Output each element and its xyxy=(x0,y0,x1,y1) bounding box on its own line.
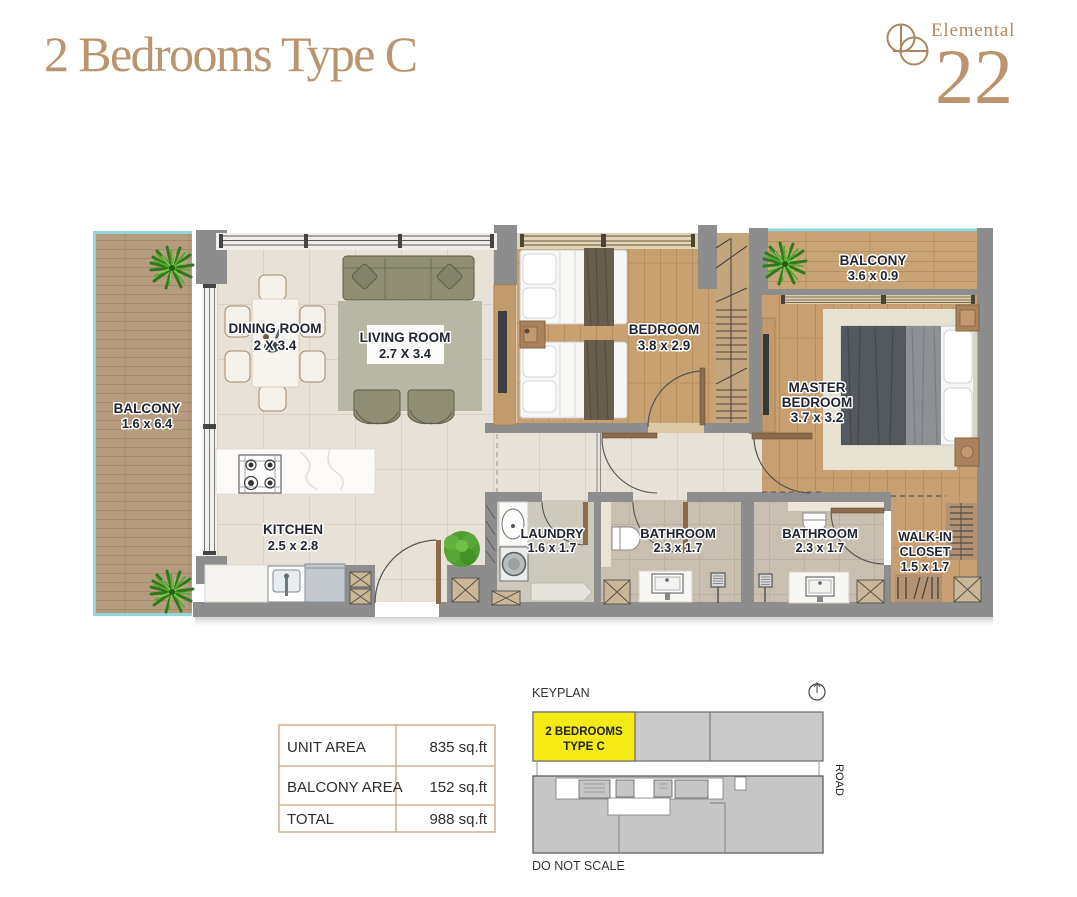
svg-text:UNIT AREA: UNIT AREA xyxy=(287,739,366,756)
svg-text:LIVING ROOM: LIVING ROOM xyxy=(360,330,451,345)
svg-text:22: 22 xyxy=(935,33,1013,120)
svg-text:2.7 X 3.4: 2.7 X 3.4 xyxy=(379,346,432,361)
svg-text:3.8 x 2.9: 3.8 x 2.9 xyxy=(638,338,691,353)
svg-text:1.6 x 6.4: 1.6 x 6.4 xyxy=(122,416,173,431)
svg-text:988 sq.ft: 988 sq.ft xyxy=(429,811,487,828)
svg-text:ROAD: ROAD xyxy=(833,764,845,796)
svg-text:BALCONY AREA: BALCONY AREA xyxy=(287,779,403,796)
svg-text:2 Bedrooms Type C: 2 Bedrooms Type C xyxy=(44,26,417,82)
svg-text:TYPE C: TYPE C xyxy=(563,741,605,753)
svg-text:BATHROOM: BATHROOM xyxy=(640,526,716,541)
svg-text:LAUNDRY: LAUNDRY xyxy=(520,526,583,541)
svg-text:BALCONY: BALCONY xyxy=(840,253,907,268)
svg-text:CLOSET: CLOSET xyxy=(900,545,951,559)
svg-text:DO NOT SCALE: DO NOT SCALE xyxy=(532,859,625,873)
svg-text:BATHROOM: BATHROOM xyxy=(782,526,858,541)
svg-text:BALCONY: BALCONY xyxy=(114,401,181,416)
svg-text:152 sq.ft: 152 sq.ft xyxy=(429,779,487,796)
svg-text:835 sq.ft: 835 sq.ft xyxy=(429,739,487,756)
svg-text:BEDROOM: BEDROOM xyxy=(629,322,700,337)
svg-text:KITCHEN: KITCHEN xyxy=(263,522,323,537)
svg-text:WALK-IN: WALK-IN xyxy=(898,530,951,544)
svg-text:BEDROOM: BEDROOM xyxy=(782,395,853,410)
svg-text:DINING ROOM: DINING ROOM xyxy=(229,321,322,336)
svg-text:2.3 x 1.7: 2.3 x 1.7 xyxy=(796,541,845,555)
svg-text:1.6 x 1.7: 1.6 x 1.7 xyxy=(528,541,577,555)
svg-text:2.5 x 2.8: 2.5 x 2.8 xyxy=(268,538,319,553)
svg-text:3.7 x 3.2: 3.7 x 3.2 xyxy=(791,410,844,425)
svg-text:2.3 x 1.7: 2.3 x 1.7 xyxy=(654,541,703,555)
svg-text:TOTAL: TOTAL xyxy=(287,811,334,828)
svg-text:1.5 x 1.7: 1.5 x 1.7 xyxy=(901,560,950,574)
svg-text:MASTER: MASTER xyxy=(789,380,846,395)
svg-text:2 BEDROOMS: 2 BEDROOMS xyxy=(545,726,623,738)
svg-text:2 X 3.4: 2 X 3.4 xyxy=(254,338,297,353)
svg-text:KEYPLAN: KEYPLAN xyxy=(532,686,590,700)
svg-text:3.6 x 0.9: 3.6 x 0.9 xyxy=(848,268,899,283)
